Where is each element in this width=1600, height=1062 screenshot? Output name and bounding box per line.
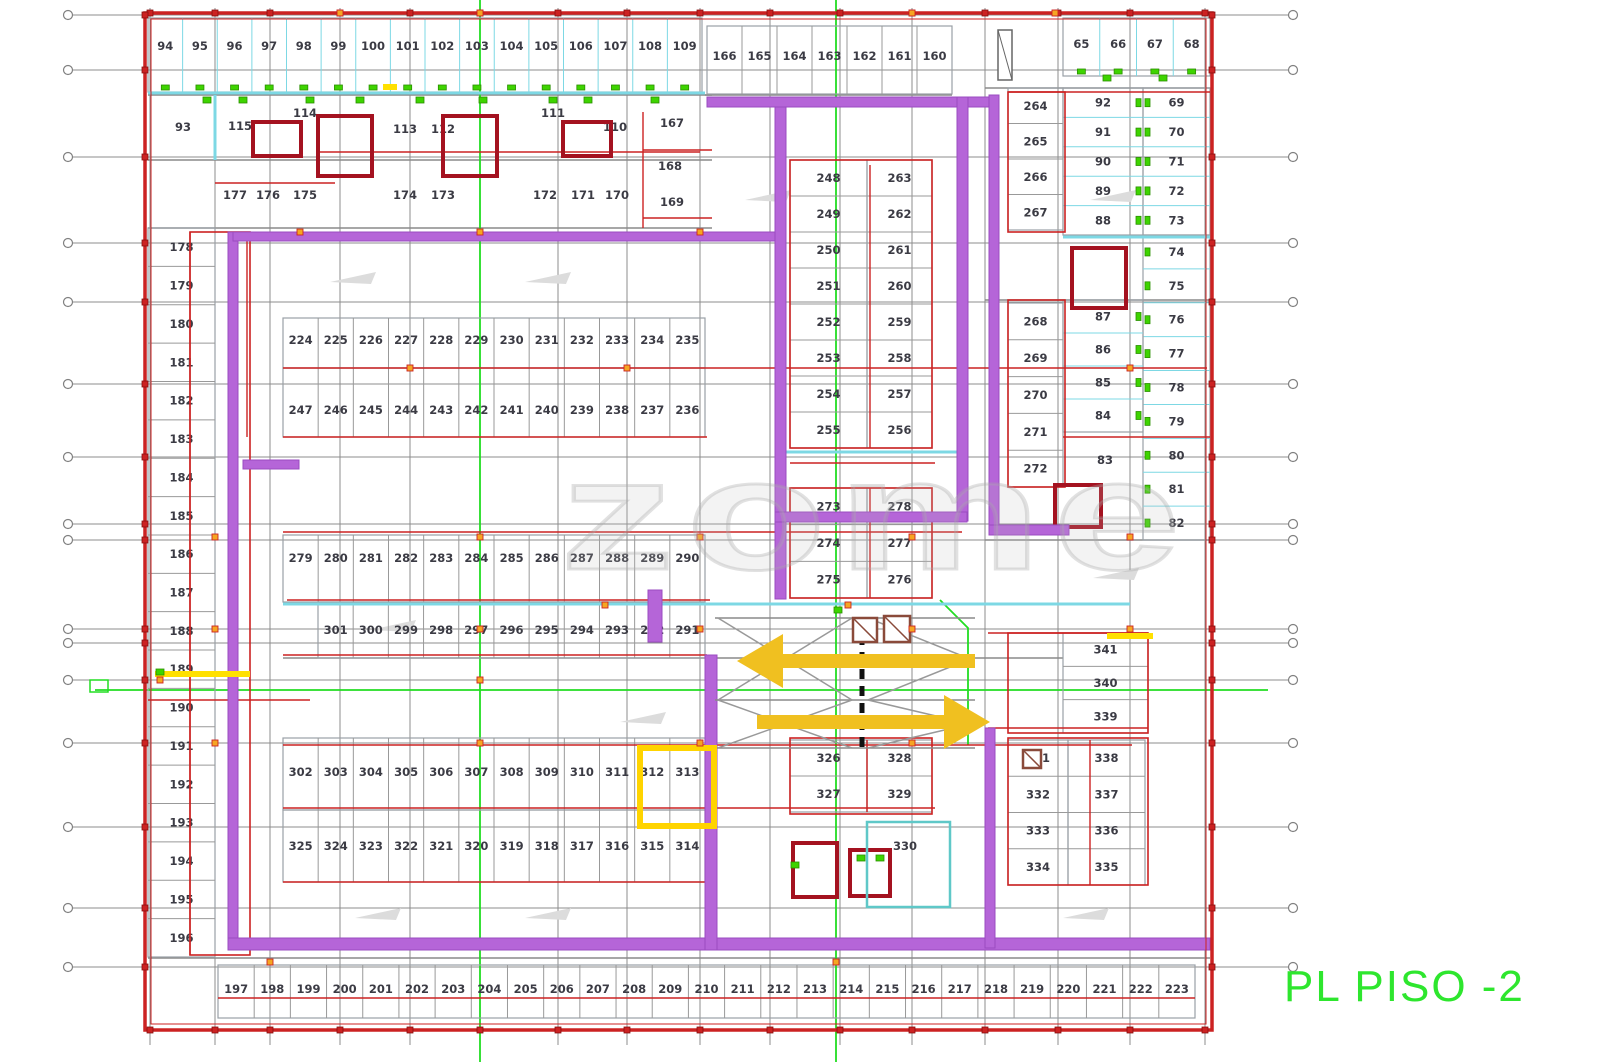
grid-bubble: [1289, 239, 1298, 248]
door-marker: [1145, 417, 1150, 425]
space-label: 289: [640, 551, 664, 565]
space-label: 115: [228, 119, 252, 133]
grid-node-dot: [477, 229, 483, 235]
space-label: 336: [1094, 824, 1118, 838]
space-label: 84: [1095, 409, 1111, 423]
door-marker: [1188, 69, 1196, 74]
grid-bubble: [64, 904, 73, 913]
grid-node-dot: [602, 602, 608, 608]
flow-arrow: [525, 272, 571, 284]
space-label: 87: [1095, 310, 1111, 324]
stair-core: [1055, 485, 1101, 527]
space-label: 232: [570, 333, 594, 347]
space-label: 71: [1168, 155, 1184, 169]
door-marker: [161, 85, 169, 90]
border-node: [267, 1027, 273, 1033]
grid-bubble: [1289, 11, 1298, 20]
border-node: [1209, 381, 1215, 387]
space-label: 246: [324, 403, 348, 417]
door-marker: [1145, 519, 1150, 527]
space-label: 197: [224, 982, 248, 996]
grid-node-dot: [157, 677, 163, 683]
border-node: [1209, 12, 1215, 18]
wall-purple: [648, 590, 662, 642]
space-label: 283: [429, 551, 453, 565]
wall-purple: [233, 232, 775, 241]
grid-bubble: [64, 11, 73, 20]
grid-bubble: [64, 239, 73, 248]
space-label: 254: [816, 387, 840, 401]
highlight-box: [640, 748, 714, 826]
space-label: 281: [359, 551, 383, 565]
space-label: 244: [394, 403, 418, 417]
space-label: 265: [1023, 134, 1047, 148]
grid-bubble: [64, 739, 73, 748]
space-label: 211: [731, 982, 755, 996]
space-label: 202: [405, 982, 429, 996]
space-label: 168: [658, 159, 682, 173]
direction-arrow-shaft: [783, 654, 975, 668]
space-label: 204: [477, 982, 501, 996]
door-marker: [1145, 99, 1150, 107]
space-label: 105: [534, 39, 558, 53]
space-label: 212: [767, 982, 791, 996]
space-label: 324: [324, 839, 348, 853]
space-label: 85: [1095, 376, 1111, 390]
space-label: 224: [289, 333, 313, 347]
door-marker: [479, 97, 487, 103]
space-label: 295: [535, 623, 559, 637]
space-label: 213: [803, 982, 827, 996]
grid-node-dot: [845, 602, 851, 608]
wall-purple: [228, 232, 238, 948]
door-marker: [356, 97, 364, 103]
space-label: 313: [675, 765, 699, 779]
door-marker: [1145, 216, 1150, 224]
door-marker: [1145, 248, 1150, 256]
grid-node-dot: [267, 959, 273, 965]
door-marker: [1145, 158, 1150, 166]
border-node: [624, 1027, 630, 1033]
space-label: 332: [1026, 787, 1050, 801]
space-label: 242: [464, 403, 488, 417]
border-node: [1209, 964, 1215, 970]
border-node: [142, 905, 148, 911]
space-label: 97: [261, 39, 277, 53]
space-label: 207: [586, 982, 610, 996]
door-marker: [231, 85, 239, 90]
border-node: [142, 626, 148, 632]
door-marker: [156, 669, 164, 675]
space-label: 338: [1094, 751, 1118, 765]
space-label: 325: [289, 839, 313, 853]
space-label: 114: [293, 106, 317, 120]
space-label: 100: [361, 39, 385, 53]
space-label: 305: [394, 765, 418, 779]
space-label: 74: [1168, 245, 1184, 259]
grid-bubble: [64, 520, 73, 529]
door-marker: [584, 97, 592, 103]
space-label: 299: [394, 623, 418, 637]
space-label: 73: [1168, 213, 1184, 227]
door-marker: [300, 85, 308, 90]
door-marker: [1136, 187, 1141, 195]
grid-bubble: [1289, 153, 1298, 162]
grid-bubble: [64, 380, 73, 389]
border-node: [1209, 740, 1215, 746]
space-label: 173: [431, 188, 455, 202]
door-marker: [611, 85, 619, 90]
space-label: 301: [324, 623, 348, 637]
border-node: [1202, 10, 1208, 16]
door-marker: [542, 85, 550, 90]
door-marker: [1136, 158, 1141, 166]
space-label: 209: [658, 982, 682, 996]
space-label: 236: [675, 403, 699, 417]
grid-node-dot: [1127, 365, 1133, 371]
door-marker: [416, 97, 424, 103]
space-label: 230: [500, 333, 524, 347]
space-label: 172: [533, 188, 557, 202]
space-label: 277: [887, 536, 911, 550]
space-label: 201: [369, 982, 393, 996]
space-label: 170: [605, 188, 629, 202]
door-marker: [1136, 379, 1141, 387]
flow-arrow: [330, 272, 376, 284]
door-marker: [1136, 128, 1141, 136]
border-node: [767, 10, 773, 16]
plan-title: PL PISO -2: [1284, 962, 1525, 1012]
space-label: 257: [887, 387, 911, 401]
space-label: 309: [535, 765, 559, 779]
grid-node-dot: [697, 626, 703, 632]
grid-node-dot: [477, 740, 483, 746]
space-label: 317: [570, 839, 594, 853]
grid-node-dot: [297, 229, 303, 235]
door-marker: [1114, 69, 1122, 74]
border-node: [142, 381, 148, 387]
space-label: 226: [359, 333, 383, 347]
space-label: 284: [464, 551, 488, 565]
grid-bubble: [1289, 66, 1298, 75]
space-label: 205: [514, 982, 538, 996]
grid-bubble: [1289, 625, 1298, 634]
door-marker: [1145, 282, 1150, 290]
space-label: 233: [605, 333, 629, 347]
space-label: 66: [1110, 37, 1126, 51]
space-label: 177: [223, 188, 247, 202]
grid-bubble: [1289, 298, 1298, 307]
space-label: 267: [1023, 205, 1047, 219]
space-label: 303: [324, 765, 348, 779]
border-node: [1209, 537, 1215, 543]
door-marker: [1145, 316, 1150, 324]
space-label: 250: [816, 243, 840, 257]
space-label: 247: [289, 403, 313, 417]
door-marker: [1145, 128, 1150, 136]
space-label: 98: [296, 39, 312, 53]
door-marker: [1159, 75, 1167, 81]
space-label: 249: [816, 207, 840, 221]
grid-bubble: [64, 153, 73, 162]
space-label: 293: [605, 623, 629, 637]
door-marker: [834, 607, 842, 613]
grid-bubble: [64, 536, 73, 545]
space-label: 322: [394, 839, 418, 853]
door-marker: [577, 85, 585, 90]
space-label: 334: [1026, 860, 1050, 874]
grid-bubble: [1289, 520, 1298, 529]
grid-node-dot: [477, 534, 483, 540]
space-label: 262: [887, 207, 911, 221]
grid-bubble: [1289, 380, 1298, 389]
space-label: 81: [1168, 482, 1184, 496]
space-label: 287: [570, 551, 594, 565]
space-label: 229: [464, 333, 488, 347]
border-node: [142, 67, 148, 73]
space-label: 67: [1147, 37, 1163, 51]
floor-plan-canvas: 9495969798991001011021031041051061071081…: [0, 0, 1600, 1062]
space-label: 266: [1023, 170, 1047, 184]
space-label: 316: [605, 839, 629, 853]
space-label: 319: [500, 839, 524, 853]
space-label: 176: [256, 188, 280, 202]
space-label: 256: [887, 423, 911, 437]
space-label: 169: [660, 195, 684, 209]
door-marker: [1145, 384, 1150, 392]
space-label: 243: [429, 403, 453, 417]
border-node: [837, 1027, 843, 1033]
space-label: 90: [1095, 155, 1111, 169]
space-label: 337: [1094, 787, 1118, 801]
door-marker: [1136, 99, 1141, 107]
wall-purple: [775, 97, 786, 599]
wall-purple: [989, 525, 1069, 535]
border-node: [142, 240, 148, 246]
space-label: 89: [1095, 184, 1111, 198]
space-label: 174: [393, 188, 417, 202]
border-node: [982, 1027, 988, 1033]
door-marker: [265, 85, 273, 90]
door-marker: [438, 85, 446, 90]
border-node: [337, 1027, 343, 1033]
door-marker: [651, 97, 659, 103]
space-label: 77: [1168, 347, 1184, 361]
space-label: 113: [393, 122, 417, 136]
stair-core: [253, 122, 301, 156]
space-label: 69: [1168, 96, 1184, 110]
border-node: [477, 1027, 483, 1033]
border-node: [212, 1027, 218, 1033]
grid-bubble: [64, 66, 73, 75]
door-marker: [1145, 485, 1150, 493]
border-node: [555, 10, 561, 16]
border-node: [1209, 299, 1215, 305]
border-node: [142, 454, 148, 460]
space-label: 200: [333, 982, 357, 996]
space-label: 108: [638, 39, 662, 53]
space-label: 163: [817, 49, 841, 63]
grid-node-dot: [337, 10, 343, 16]
door-marker: [876, 855, 884, 861]
space-label: 225: [324, 333, 348, 347]
border-node: [837, 10, 843, 16]
grid-node-dot: [909, 740, 915, 746]
space-label: 269: [1023, 351, 1047, 365]
border-node: [624, 10, 630, 16]
space-label: 171: [571, 188, 595, 202]
space-label: 294: [570, 623, 594, 637]
space-label: 75: [1168, 279, 1184, 293]
space-label: 231: [535, 333, 559, 347]
door-marker: [791, 862, 799, 868]
grid-bubble: [1289, 453, 1298, 462]
space-label: 103: [465, 39, 489, 53]
space-label: 264: [1023, 99, 1047, 113]
border-node: [407, 1027, 413, 1033]
space-label: 274: [816, 536, 840, 550]
space-label: 95: [192, 39, 208, 53]
door-marker: [1151, 69, 1159, 74]
border-node: [407, 10, 413, 16]
space-label: 82: [1168, 516, 1184, 530]
space-label: 241: [500, 403, 524, 417]
door-marker: [203, 97, 211, 103]
space-label: 86: [1095, 343, 1111, 357]
space-label: 198: [260, 982, 284, 996]
border-node: [1209, 905, 1215, 911]
direction-arrow-head: [944, 695, 990, 749]
space-label: 165: [747, 49, 771, 63]
space-label: 161: [887, 49, 911, 63]
space-label: 175: [293, 188, 317, 202]
grid-bubble: [64, 823, 73, 832]
space-label: 79: [1168, 414, 1184, 428]
flow-arrow: [1063, 908, 1109, 920]
grid-node-dot: [477, 677, 483, 683]
space-label: 94: [157, 39, 173, 53]
grid-node-dot: [477, 626, 483, 632]
floor-plan-viewport: 9495969798991001011021031041051061071081…: [0, 0, 1600, 1062]
door-marker: [549, 97, 557, 103]
border-node: [1209, 240, 1215, 246]
grid-bubble: [64, 639, 73, 648]
space-label: 206: [550, 982, 574, 996]
space-label: 220: [1056, 982, 1080, 996]
space-label: 263: [887, 171, 911, 185]
space-label: 203: [441, 982, 465, 996]
space-label: 248: [816, 171, 840, 185]
space-label: 311: [605, 765, 629, 779]
door-marker: [1077, 69, 1085, 74]
door-marker: [239, 97, 247, 103]
space-label: 304: [359, 765, 383, 779]
red-outline: [190, 232, 250, 955]
border-node: [909, 1027, 915, 1033]
space-label: 215: [875, 982, 899, 996]
space-label: 258: [887, 351, 911, 365]
space-label: 228: [429, 333, 453, 347]
space-label: 272: [1023, 462, 1047, 476]
door-marker: [681, 85, 689, 90]
grid-node-dot: [407, 365, 413, 371]
grid-node-dot: [1127, 534, 1133, 540]
door-marker: [1145, 187, 1150, 195]
space-label: 111: [541, 106, 565, 120]
door-marker: [1145, 451, 1150, 459]
border-node: [1055, 1027, 1061, 1033]
border-node: [142, 12, 148, 18]
wall-purple: [707, 97, 989, 107]
border-node: [142, 964, 148, 970]
grid-node-dot: [697, 229, 703, 235]
space-label: 107: [603, 39, 627, 53]
space-label: 104: [500, 39, 524, 53]
space-label: 208: [622, 982, 646, 996]
border-node: [147, 1027, 153, 1033]
border-node: [1209, 521, 1215, 527]
space-label: 327: [816, 787, 840, 801]
space-label: 162: [852, 49, 876, 63]
red-outline: [1008, 633, 1148, 733]
door-marker: [646, 85, 654, 90]
space-label: 160: [922, 49, 946, 63]
wall-purple: [985, 728, 995, 948]
flow-arrow: [355, 908, 401, 920]
space-label: 80: [1168, 448, 1184, 462]
space-label: 333: [1026, 824, 1050, 838]
border-node: [142, 677, 148, 683]
space-label: 291: [675, 623, 699, 637]
border-node: [142, 824, 148, 830]
space-label: 306: [429, 765, 453, 779]
door-marker: [1136, 346, 1141, 354]
space-label: 78: [1168, 381, 1184, 395]
space-label: 76: [1168, 313, 1184, 327]
border-node: [1127, 1027, 1133, 1033]
border-node: [697, 1027, 703, 1033]
space-label: 275: [816, 573, 840, 587]
door-marker: [196, 85, 204, 90]
grid-node-dot: [697, 534, 703, 540]
space-label: 297: [464, 623, 488, 637]
door-marker: [369, 85, 377, 90]
space-label: 227: [394, 333, 418, 347]
space-label: 88: [1095, 213, 1111, 227]
space-label: 238: [605, 403, 629, 417]
door-marker: [1136, 412, 1141, 420]
space-label: 218: [984, 982, 1008, 996]
space-label: 315: [640, 839, 664, 853]
space-label: 271: [1023, 425, 1047, 439]
grid-bubble: [64, 676, 73, 685]
border-node: [1209, 677, 1215, 683]
door-marker: [1136, 313, 1141, 321]
door-marker: [306, 97, 314, 103]
space-label: 237: [640, 403, 664, 417]
space-label: 210: [694, 982, 718, 996]
grid-bubble: [1289, 904, 1298, 913]
border-node: [267, 10, 273, 16]
border-node: [982, 10, 988, 16]
space-label: 167: [660, 116, 684, 130]
space-label: 318: [535, 839, 559, 853]
space-label: 273: [816, 499, 840, 513]
stair-core: [793, 843, 837, 897]
space-label: 288: [605, 551, 629, 565]
space-label: 323: [359, 839, 383, 853]
space-label: 260: [887, 279, 911, 293]
